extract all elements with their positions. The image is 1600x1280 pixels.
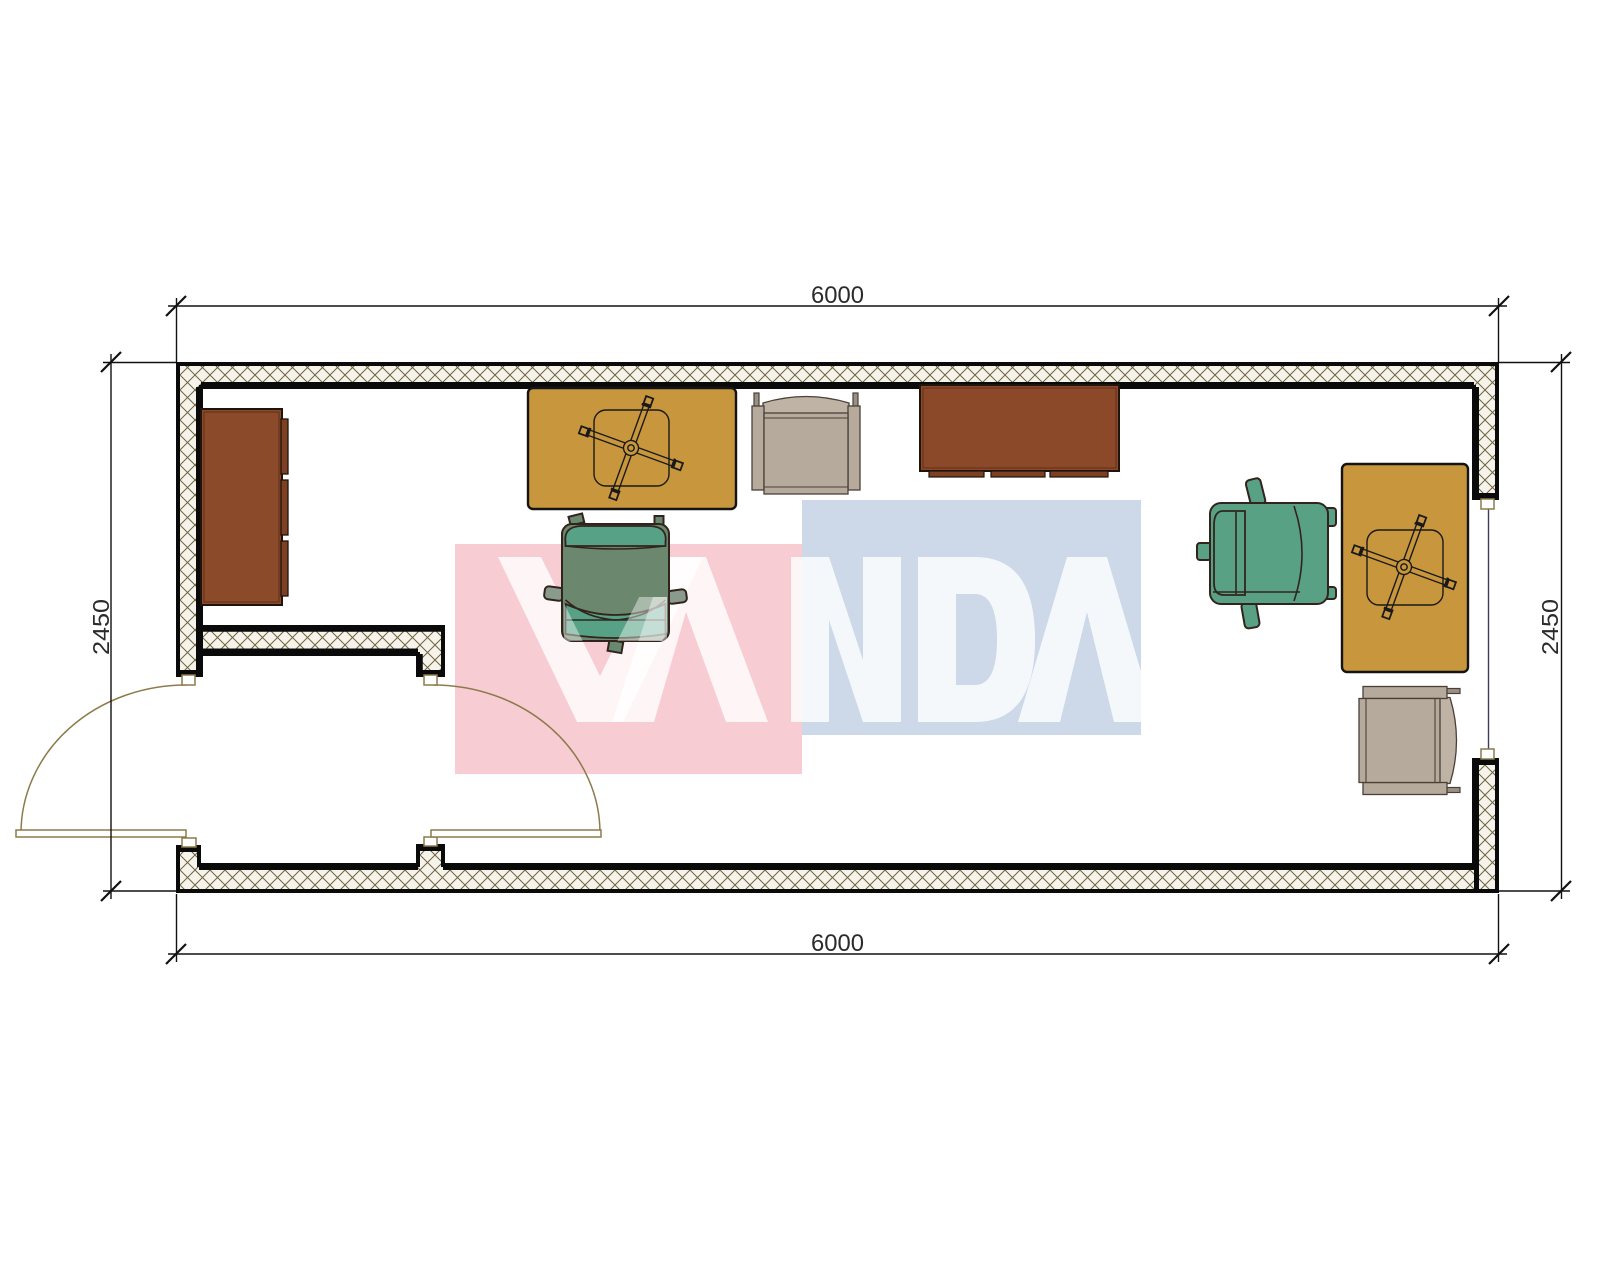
svg-text:6000: 6000 bbox=[811, 282, 864, 309]
svg-text:2450: 2450 bbox=[88, 599, 114, 655]
svg-text:2450: 2450 bbox=[1537, 599, 1563, 655]
svg-text:6000: 6000 bbox=[811, 930, 864, 957]
